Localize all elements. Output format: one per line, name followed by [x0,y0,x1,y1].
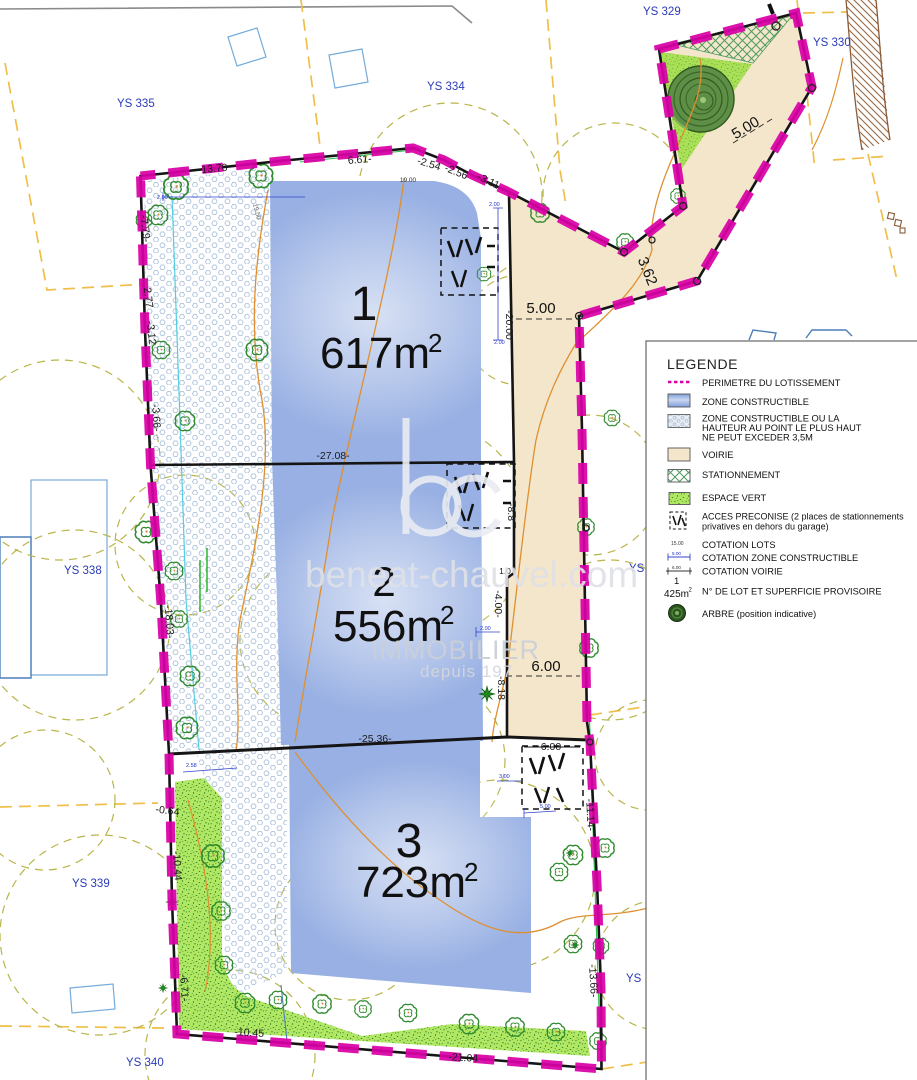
svg-text:YS 334: YS 334 [427,81,465,93]
svg-text:YS 340: YS 340 [126,1057,164,1069]
svg-text:-10.45: -10.45 [234,1026,265,1040]
svg-text:5.00: 5.00 [672,551,681,556]
svg-text:2.00: 2.00 [157,195,168,201]
svg-text:2: 2 [428,328,442,358]
svg-text:ARBRE (position indicative): ARBRE (position indicative) [702,609,816,619]
svg-text:COTATION ZONE CONSTRUCTIBLE: COTATION ZONE CONSTRUCTIBLE [702,553,858,563]
svg-text:PERIMETRE DU LOTISSEMENT: PERIMETRE DU LOTISSEMENT [702,378,841,388]
svg-text:-3.12: -3.12 [144,320,158,345]
svg-text:5.00: 5.00 [526,300,555,317]
svg-text:IMMOBILIER: IMMOBILIER [371,635,540,665]
svg-text:-10.44: -10.44 [170,851,184,882]
svg-text:YS 339: YS 339 [72,878,110,890]
svg-text:-18.03-: -18.03- [162,605,176,640]
svg-text:beneat-chauvel.com: beneat-chauvel.com [305,554,638,595]
svg-text:LEGENDE: LEGENDE [667,356,738,372]
svg-text:425m: 425m [664,589,689,600]
svg-text:-6.71-: -6.71- [177,974,191,1003]
svg-text:2: 2 [440,600,454,630]
svg-text:-3.66-: -3.66- [149,404,163,433]
svg-text:NE PEUT EXCEDER 3,5M: NE PEUT EXCEDER 3,5M [702,433,813,443]
svg-text:YS 338: YS 338 [64,565,102,577]
svg-text:2.58: 2.58 [186,763,197,769]
svg-text:STATIONNEMENT: STATIONNEMENT [702,470,780,480]
svg-text:ZONE CONSTRUCTIBLE: ZONE CONSTRUCTIBLE [702,397,809,407]
svg-text:-21.04: -21.04 [448,1051,479,1065]
svg-text:-8.8: -8.8 [505,503,517,521]
svg-text:depuis 197: depuis 197 [420,662,513,681]
svg-text:15.00: 15.00 [671,541,684,547]
svg-text:-20.00: -20.00 [503,310,515,340]
svg-text:YS 330: YS 330 [813,37,851,49]
svg-text:YS 335: YS 335 [117,98,155,110]
svg-text:2.77: 2.77 [141,287,155,309]
svg-text:2.00: 2.00 [480,626,491,632]
svg-text:-13.66-: -13.66- [586,964,600,998]
svg-text:YS 329: YS 329 [643,6,681,18]
svg-text:ZONE CONSTRUCTIBLE OU LA: ZONE CONSTRUCTIBLE OU LA [702,414,840,424]
svg-text:HAUTEUR AU POINT LE PLUS HAUT: HAUTEUR AU POINT LE PLUS HAUT [702,423,862,433]
svg-text:3.00: 3.00 [499,774,510,780]
svg-text:-25.36-: -25.36- [358,733,392,745]
svg-text:19.00: 19.00 [400,177,417,184]
svg-text:2.00: 2.00 [489,202,500,208]
svg-text:2.00: 2.00 [494,340,505,346]
svg-text:ESPACE VERT: ESPACE VERT [702,493,767,503]
svg-text:6.61-: 6.61- [347,153,372,167]
svg-text:2: 2 [464,857,478,887]
svg-text:YS: YS [626,973,642,985]
svg-text:-27.08-: -27.08- [316,450,350,462]
svg-text:617m: 617m [320,329,430,378]
svg-text:1: 1 [674,576,679,587]
svg-text:5.00: 5.00 [540,804,551,810]
svg-text:1: 1 [351,278,378,331]
svg-text:6.00: 6.00 [672,565,681,570]
svg-text:privatives en dehors du garage: privatives en dehors du garage) [702,522,829,532]
svg-text:-11.14-: -11.14- [583,798,597,832]
svg-text:N° DE LOT ET SUPERFICIE PROVIS: N° DE LOT ET SUPERFICIE PROVISOIRE [702,587,882,597]
svg-text:723m: 723m [356,858,466,907]
svg-text:COTATION VOIRIE: COTATION VOIRIE [702,567,783,577]
svg-text:ACCES PRECONISE (2 places de s: ACCES PRECONISE (2 places de stationneme… [702,512,904,522]
svg-text:COTATION LOTS: COTATION LOTS [702,540,776,550]
svg-text:VOIRIE: VOIRIE [702,450,734,460]
